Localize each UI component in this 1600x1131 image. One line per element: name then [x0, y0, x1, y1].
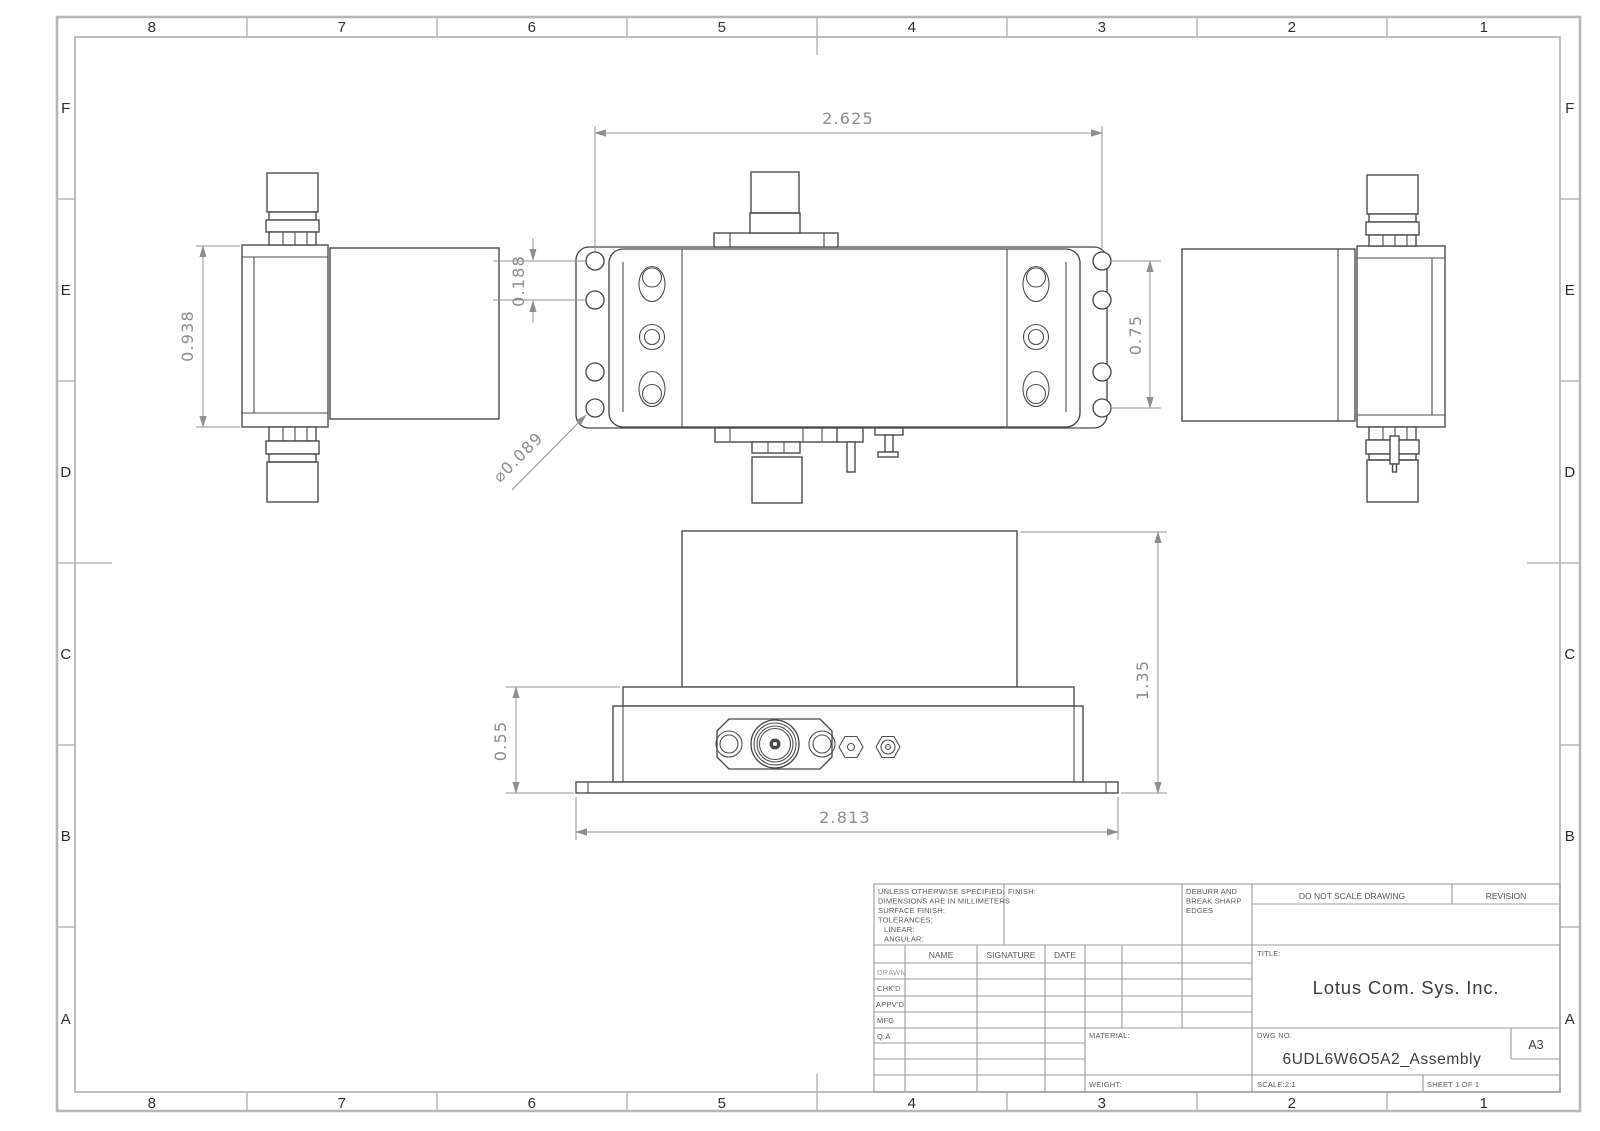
row-label-appvd: APPV'D	[876, 1000, 904, 1009]
zone-row-label: F	[1565, 100, 1575, 117]
sma-port-top	[714, 172, 838, 247]
deburr-line: EDGES	[1186, 906, 1213, 915]
dc-pins	[837, 428, 903, 472]
drawing-sheet: 8 7 6 5 4 3 2 1 8 7 6 5 4 3 2 1 F E D C …	[0, 0, 1600, 1131]
signature-header: SIGNATURE	[987, 950, 1036, 960]
top-view: 2.625 0.188 0.75 ⌀0.089	[489, 109, 1161, 503]
zone-row-label: B	[1565, 828, 1576, 845]
do-not-scale-label: DO NOT SCALE DRAWING	[1299, 891, 1405, 901]
row-label-chkd: CHK'D	[877, 984, 901, 993]
zone-col-label: 7	[338, 19, 347, 36]
dim-front-width: 2.813	[819, 808, 871, 827]
sma-end-view	[716, 719, 835, 769]
dim-flange-height: 0.75	[1126, 315, 1145, 355]
spec-line: LINEAR:	[884, 925, 915, 934]
zone-col-label: 2	[1288, 1095, 1297, 1112]
spec-line: TOLERANCES:	[878, 916, 933, 925]
dimension-0938: 0.938	[178, 246, 240, 427]
title-label: TITLE:	[1257, 949, 1281, 958]
dwg-no-label: DWG NO.	[1257, 1031, 1292, 1040]
dim-side-height: 0.938	[178, 310, 197, 362]
sma-connector-bottom	[266, 427, 319, 502]
dimension-075: 0.75	[1112, 261, 1161, 408]
date-header: DATE	[1054, 950, 1076, 960]
paper-size: A3	[1528, 1038, 1543, 1052]
dim-front-step: 0.55	[491, 721, 510, 761]
zone-col-label: 5	[718, 19, 727, 36]
row-label-mfg: MFG	[877, 1016, 894, 1025]
dimension-2625: 2.625	[595, 109, 1102, 252]
sma-connector-top	[1366, 175, 1419, 246]
finish-label: FINISH:	[1008, 887, 1036, 896]
spec-line: ANGULAR:	[884, 935, 924, 944]
sma-connector-bottom	[1366, 427, 1419, 502]
zone-row-label: E	[1565, 282, 1576, 299]
zone-col-label: 8	[148, 1095, 157, 1112]
zone-col-label: 8	[148, 19, 157, 36]
spec-line: SURFACE FINISH:	[878, 906, 945, 915]
zone-col-label: 4	[908, 19, 917, 36]
zone-col-label: 3	[1098, 1095, 1107, 1112]
front-view: 0.55 1.35 2.813	[491, 531, 1167, 840]
row-label-drawn: DRAWN	[877, 968, 906, 977]
spec-line: UNLESS OTHERWISE SPECIFIED:	[878, 887, 1005, 896]
zone-col-label: 2	[1288, 19, 1297, 36]
dimension-2813: 2.813	[576, 797, 1118, 840]
dimension-055: 0.55	[491, 687, 620, 793]
zone-col-label: 7	[338, 1095, 347, 1112]
engineering-drawing: 8 7 6 5 4 3 2 1 8 7 6 5 4 3 2 1 F E D C …	[0, 0, 1600, 1131]
name-header: NAME	[929, 950, 954, 960]
title-block: UNLESS OTHERWISE SPECIFIED: DIMENSIONS A…	[874, 884, 1560, 1092]
zone-row-label: E	[61, 282, 72, 299]
zone-col-label: 4	[908, 1095, 917, 1112]
sma-connector-top	[266, 173, 319, 245]
zone-col-label: 5	[718, 1095, 727, 1112]
leader-hole-dia: ⌀0.089	[489, 415, 586, 490]
zone-row-label: D	[60, 464, 71, 481]
dimension-0188: 0.188	[493, 238, 585, 323]
dim-hole-pitch: 0.188	[509, 255, 528, 307]
zone-col-label: 3	[1098, 19, 1107, 36]
company-title: Lotus Com. Sys. Inc.	[1313, 977, 1500, 998]
weight-label: WEIGHT:	[1089, 1080, 1122, 1089]
zone-col-label: 1	[1480, 1095, 1489, 1112]
zone-col-label: 1	[1480, 19, 1489, 36]
scale-label: SCALE:2:1	[1257, 1080, 1296, 1089]
row-label-qa: Q.A	[877, 1032, 891, 1041]
sma-port-bottom	[715, 428, 838, 503]
side-view-right	[1182, 175, 1445, 502]
dim-hole-dia: ⌀0.089	[489, 428, 547, 486]
dim-top-width: 2.625	[822, 109, 874, 128]
zone-row-label: B	[61, 828, 72, 845]
zone-row-label: F	[61, 100, 71, 117]
deburr-line: BREAK SHARP	[1186, 897, 1242, 906]
zone-row-label: A	[61, 1011, 72, 1028]
material-label: MATERIAL:	[1089, 1031, 1130, 1040]
revision-label: REVISION	[1486, 891, 1527, 901]
spec-line: DIMENSIONS ARE IN MILLIMETERS	[878, 897, 1010, 906]
sheet-label: SHEET 1 OF 1	[1427, 1080, 1479, 1089]
zone-row-label: D	[1564, 464, 1575, 481]
zone-col-label: 6	[528, 1095, 537, 1112]
side-view-left: 0.938	[178, 173, 499, 502]
zone-col-label: 6	[528, 19, 537, 36]
dwg-number: 6UDL6W6O5A2_Assembly	[1283, 1051, 1482, 1068]
dim-front-total: 1.35	[1133, 660, 1152, 700]
zone-row-label: C	[60, 646, 71, 663]
zone-row-label: C	[1564, 646, 1575, 663]
deburr-line: DEBURR AND	[1186, 887, 1238, 896]
zone-row-label: A	[1565, 1011, 1576, 1028]
spec-notes: UNLESS OTHERWISE SPECIFIED: DIMENSIONS A…	[878, 887, 1010, 944]
